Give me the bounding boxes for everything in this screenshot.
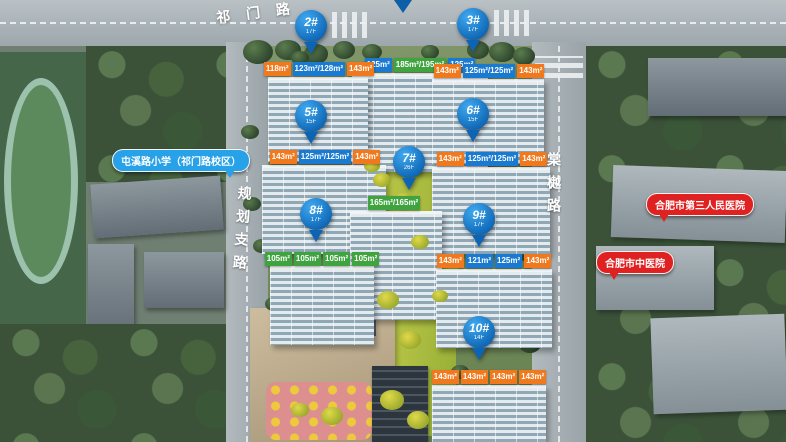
unit-size-strip: 143m²125m²/125m²143m²	[432, 152, 552, 166]
hospital-building	[650, 314, 786, 415]
building-floors: 17F	[468, 26, 478, 34]
unit-size-strip: 118m²123m²/128m²143m²	[268, 62, 370, 76]
pin-tail	[304, 132, 318, 144]
building-number: 6#	[466, 104, 479, 116]
top-road-lane-line	[0, 22, 786, 24]
unit-size-label: 143m²	[520, 152, 547, 166]
hospital-callout-2[interactable]: 合肥市中医院	[596, 251, 674, 274]
unit-size-label: 143m²	[519, 370, 546, 384]
unit-size-label: 105m²	[352, 252, 379, 266]
unit-size-label: 143m²	[517, 64, 544, 78]
forest	[0, 324, 226, 442]
school-callout[interactable]: 屯溪路小学（祁门路校区）	[112, 149, 250, 172]
building-pin[interactable]: 8#17F	[300, 198, 332, 242]
unit-size-label: 105m²	[323, 252, 350, 266]
unit-size-strip: 143m²143m²143m²143m²	[428, 370, 550, 384]
pin-marker-icon: 5#15F	[295, 100, 327, 132]
building-number: 5#	[304, 106, 317, 118]
building-floors: 15F	[468, 116, 478, 124]
pin-tail	[304, 42, 318, 54]
unit-size-strip: 105m²105m²105m²105m²	[266, 252, 378, 266]
unit-size-label: 121m²	[466, 254, 493, 268]
hospital-callout-1[interactable]: 合肥市第三人民医院	[646, 193, 754, 216]
crosswalk	[332, 12, 368, 38]
crosswalk	[494, 10, 530, 36]
building-pin[interactable]: 10#14F	[463, 316, 495, 360]
pin-marker-icon: 2#17F	[295, 10, 327, 42]
tree-icon	[241, 125, 259, 139]
building-floors: 17F	[311, 216, 321, 224]
yellow-tree-icon	[399, 331, 421, 349]
unit-size-label: 143m²	[461, 370, 488, 384]
building-across-road	[648, 58, 786, 116]
building-pin-partial[interactable]	[394, 0, 412, 13]
yellow-tree-icon	[321, 407, 343, 425]
unit-size-label: 118m²	[264, 62, 291, 76]
yellow-tree-icon	[380, 390, 404, 409]
pin-marker-icon: 9#17F	[463, 203, 495, 235]
pin-tail	[472, 235, 486, 247]
unit-size-strip: 165m²/165m²	[348, 196, 440, 210]
building-number: 3#	[466, 14, 479, 26]
unit-size-label: 143m²	[270, 150, 297, 164]
unit-size-label: 125m²/125m²	[466, 152, 518, 166]
unit-size-label: 143m²	[490, 370, 517, 384]
yellow-tree-icon	[291, 403, 309, 417]
building-pin[interactable]: 2#17F	[295, 10, 327, 54]
unit-size-label: 125m²/125m²	[299, 150, 351, 164]
pin-tail	[309, 230, 323, 242]
unit-size-strip: 143m²125m²/125m²143m²	[262, 150, 388, 164]
building-number: 2#	[304, 16, 317, 28]
unit-size-label: 143m²	[353, 150, 380, 164]
unit-size-label: 125m²/125m²	[463, 64, 515, 78]
building-pin[interactable]: 9#17F	[463, 203, 495, 247]
right-road-lane-line	[558, 46, 560, 442]
yellow-tree-icon	[411, 235, 429, 249]
kindergarten-playground	[266, 382, 372, 440]
pin-tail	[466, 40, 480, 52]
running-track	[4, 78, 78, 284]
school-building	[144, 252, 224, 308]
building-floors: 15F	[306, 118, 316, 126]
building-number: 9#	[472, 209, 485, 221]
yellow-tree-icon	[407, 411, 429, 429]
pin-marker-icon: 3#17F	[457, 8, 489, 40]
building-floors: 17F	[474, 221, 484, 229]
building-floors: 26F	[404, 164, 414, 172]
yellow-tree-icon	[377, 291, 399, 309]
building-pin[interactable]: 7#26F	[393, 146, 425, 190]
site-plan-aerial: 125m²185m²/195m²125m²118m²123m²/128m²143…	[0, 0, 786, 442]
pin-tail	[472, 348, 486, 360]
school-building	[88, 244, 134, 336]
unit-size-label: 105m²	[294, 252, 321, 266]
pin-marker-icon: 7#26F	[393, 146, 425, 178]
unit-size-label: 143m²	[524, 254, 551, 268]
unit-size-label: 143m²	[432, 370, 459, 384]
pin-marker-icon: 8#17F	[300, 198, 332, 230]
unit-size-strip: 143m²125m²/125m²143m²	[432, 64, 546, 78]
unit-size-label: 143m²	[347, 62, 374, 76]
pin-tail	[466, 130, 480, 142]
building-floors: 17F	[306, 28, 316, 36]
building-pin[interactable]: 6#15F	[457, 98, 489, 142]
school-building	[90, 176, 223, 239]
yellow-tree-icon	[373, 173, 391, 187]
unit-size-label: 165m²/165m²	[368, 196, 420, 210]
unit-size-label: 105m²	[265, 252, 292, 266]
building-facade	[432, 385, 546, 442]
tree-icon	[513, 47, 535, 65]
building-number: 7#	[402, 152, 415, 164]
building-facade	[270, 266, 374, 345]
building-pin[interactable]: 5#15F	[295, 100, 327, 144]
pin-marker-icon: 10#14F	[463, 316, 495, 348]
left-road-lane-line	[246, 46, 248, 442]
building-number: 8#	[309, 204, 322, 216]
building-pin[interactable]: 3#17F	[457, 8, 489, 52]
pin-tail	[402, 178, 416, 190]
unit-size-label: 123m²/128m²	[293, 62, 345, 76]
tree-icon	[243, 197, 261, 211]
unit-size-strip: 143m²121m²125m²143m²	[432, 254, 556, 268]
unit-size-label: 125m²	[495, 254, 522, 268]
building-floors: 14F	[474, 334, 484, 342]
tree-icon	[243, 40, 273, 64]
unit-size-label: 143m²	[437, 254, 464, 268]
tree-icon	[333, 41, 355, 59]
unit-size-label: 143m²	[434, 64, 461, 78]
pin-marker-icon: 6#15F	[457, 98, 489, 130]
building-number: 10#	[469, 322, 489, 334]
unit-size-label: 143m²	[437, 152, 464, 166]
